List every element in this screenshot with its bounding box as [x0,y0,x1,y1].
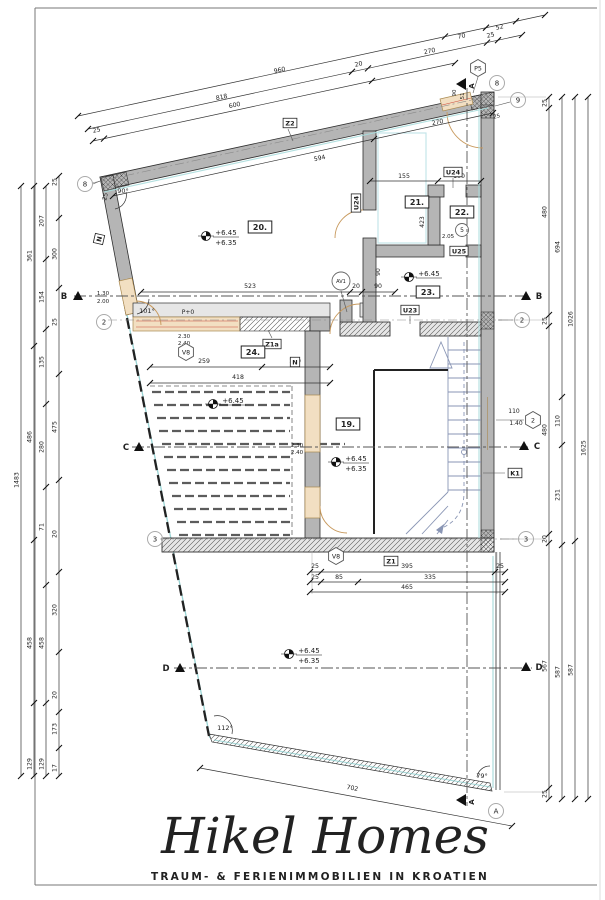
tag-box-label: N [292,359,297,367]
section-marker-B [521,291,531,300]
annotation-text: 280 [39,441,46,453]
annotation-text: 2 [531,417,535,424]
annotation-text: 22. [455,208,469,217]
annotation-text: B [536,292,542,302]
tag-box-u25: U25 [450,246,468,256]
tag-box-label: Z2 [285,120,294,128]
annotation-text: 231 [555,489,562,501]
annotation-text: A [468,83,476,89]
dim-tick [542,12,548,18]
annotation-text: 101° [139,307,155,315]
section-marker-D [175,663,185,672]
annotation-text: 19. [341,420,355,429]
annotation-text: 2 [520,317,524,325]
tag-box-label: U25 [452,248,467,256]
window-mid-wall [305,395,320,452]
annotation-text: V8 [182,349,190,356]
section-marker-C [519,441,529,450]
annotation-text: 480 [542,206,549,218]
annotation-text: +6.45 [222,397,243,405]
annotation-text: 155 [398,173,410,180]
elevation-marker [289,650,294,655]
annotation-text: 25 [311,574,319,581]
dim-tick [509,823,515,829]
annotation-text: 1.40 [509,420,523,427]
section-flag-A [456,794,466,806]
elevation-marker [206,232,211,237]
annotation-text: 2.30 [178,334,191,340]
annotation-text: 25 [52,178,59,186]
annotation-text: 25 [311,563,319,570]
annotation-text: 475 [52,421,59,433]
dim-tick [452,60,458,66]
elevation-marker [213,400,218,405]
section-flag-A [456,78,466,90]
annotation-text: 2.05 [442,234,455,240]
annotation-text: +6.45 [418,270,439,278]
annotation-text: 270 [423,47,436,56]
dim-tick [197,765,203,771]
entrance-opening [440,92,488,450]
annotation-text: 458 [27,637,34,649]
annotation-text: 20 [52,530,59,538]
annotation-text: 25 [52,318,59,326]
annotation-text: 20 [542,535,549,543]
dim-tick [519,32,525,38]
annotation-text: 702 [346,784,359,793]
section-marker-C [134,442,144,451]
annotation-text: 3 [524,536,528,544]
tag-box-z1a: Z1a [263,339,281,349]
annotation-text: +6.35 [298,657,319,665]
annotation-text: 320 [52,604,59,616]
annotation-text: 129 [39,758,46,770]
dim-tick [369,78,375,84]
annotation-text: 587 [568,664,575,676]
tag-box-k1: K1 [508,468,522,478]
annotation-text: A [468,799,476,805]
section-marker-B [73,291,83,300]
annotation-text: 465 [401,584,413,591]
annotation-text: 70 [457,32,466,41]
annotation-text: 3 [153,536,157,544]
annotation-text: 85 [335,574,343,581]
elevation-marker [285,654,290,659]
annotation-text: 300 [52,248,59,260]
annotation-text: 259 [198,358,210,365]
annotation-text: +6.45 [215,229,236,237]
annotation-text: 8 [495,80,499,88]
annotation-text: 25 [542,790,549,798]
tag-box-label: U24 [353,195,361,210]
window-mid-wall [305,487,320,518]
annotation-text: C [123,443,129,453]
annotation-text: 90 [452,89,458,96]
annotation-text: 24. [246,348,260,357]
annotation-text: 594 [313,154,326,163]
annotation-text: 129 [27,758,34,770]
elevation-marker [202,236,207,241]
annotation-text: 90 [374,283,382,290]
elevation-marker [209,404,214,409]
annotation-text: 9 [516,97,520,105]
annotation-text: 694 [555,241,562,253]
tag-box-u23: U23 [401,305,419,315]
annotation-text: 523 [244,283,256,290]
angle-arcs [115,192,490,777]
plot-boundary [101,180,500,791]
annotation-text: 270 [431,118,444,127]
annotation-text: 587 [555,666,562,678]
annotation-text: 110 [555,415,562,427]
dim-tick [365,65,371,71]
annotation-text: 25 [92,126,101,135]
annotation-text: A [494,808,499,816]
dim-tick [513,18,519,24]
annotation-text: 423 [419,216,426,228]
floor-opening-edge [374,370,448,534]
tag-box-label: Z1 [386,558,396,566]
annotation-text: 110 [508,408,520,415]
elevation-marker [336,458,341,463]
annotation-text: 480 [542,424,549,436]
tag-box-label: Z1a [265,341,279,349]
annotation-text: 52 [495,23,504,32]
tag-box-u24: U24 [444,167,462,177]
annotation-text: C [534,442,540,452]
tag-box-z1: Z1 [384,556,398,566]
tag-box-label: U23 [403,307,417,315]
annotation-text: 25 [486,31,495,40]
annotation-text: 90 [375,268,382,276]
annotation-text: 25 [493,113,502,120]
annotation-text: D [162,664,169,674]
tag-box-n: N [93,233,104,244]
elevation-marker [409,273,414,278]
annotation-text: 135 [39,356,46,368]
tag-box-z2: Z2 [283,118,297,128]
elevation-marker [332,462,337,467]
annotation-text: 2.30 [291,443,304,449]
annotation-text: 20 [352,283,360,290]
dim-tick [75,113,81,119]
section-marker-D [521,662,531,671]
dim-tick [483,25,489,31]
annotation-text: 960 [273,66,286,75]
annotation-text: +6.45 [345,455,366,463]
annotation-text: 25 [542,317,549,325]
floor-plan-sheet: 1483361486458129207154135280714581292530… [0,0,605,900]
dim-tick [484,40,490,46]
annotation-text: 361 [27,250,34,262]
annotation-text: 418 [232,374,244,381]
annotation-text: 1483 [14,472,21,488]
annotation-text: P+0 [182,309,195,316]
annotation-text: AV1 [336,279,346,285]
dim-tick [90,138,96,144]
annotation-text: V8 [332,553,340,560]
annotation-text: 173 [52,723,59,735]
annotation-text: 5 [460,227,464,234]
annotation-text: 1.30 [97,291,110,297]
annotation-text: 154 [39,291,46,303]
annotation-text: B [61,292,67,302]
dim-tick [101,136,107,142]
annotation-text: D [535,663,542,673]
annotation-text: 486 [27,431,34,443]
annotation-text: 818 [215,93,228,102]
annotation-text: P5 [474,65,482,72]
logo-tagline: TRAUM- & FERIENIMMOBILIEN IN KROATIEN [151,871,489,883]
annotation-text: 600 [228,101,241,110]
annotation-text: 2.00 [97,299,110,305]
tag-box-label: U24 [446,169,461,177]
dim-tick [495,37,501,43]
annotation-text: +6.35 [215,239,236,247]
annotation-text: +6.35 [345,465,366,473]
dim-tick [349,69,355,75]
annotation-text: 458 [39,637,46,649]
floor-plan-svg: 1483361486458129207154135280714581292530… [0,0,605,900]
annotation-text: 2.40 [291,450,304,456]
annotation-text: 25 [496,563,504,570]
annotation-text: 25 [542,99,549,107]
tag-box-n: N [290,357,299,367]
annotation-text: 2 [102,319,106,327]
annotation-text: 20. [253,223,267,232]
annotation-text: 20 [354,60,363,69]
annotation-text: 567 [542,660,549,672]
annotation-text: 207 [39,215,46,227]
logo: Hikel Homes TRAUM- & FERIENIMMOBILIEN IN… [151,807,489,883]
annotation-text: 20 [52,691,59,699]
annotation-text: 1026 [568,311,575,327]
annotation-text: 71 [39,523,46,531]
annotation-text: 79° [476,772,488,780]
annotation-text: 395 [401,563,413,570]
annotation-text: 23. [421,288,435,297]
elevation-marker [405,277,410,282]
tag-box-u24: U24 [351,194,361,212]
annotation-text: 112° [217,724,233,732]
annotation-text: +6.45 [298,647,319,655]
annotation-text: 335 [424,574,436,581]
stairs [406,337,481,534]
annotation-text: 90° [117,187,129,195]
logo-text: Hikel Homes [160,807,489,865]
dim-tick [85,126,91,132]
tag-box-label: K1 [510,470,520,478]
annotation-text: 8 [83,181,87,189]
annotation-text: 51 [460,93,466,100]
annotation-text: 17 [52,764,59,772]
annotation-text: 21. [410,198,424,207]
annotation-text: 1625 [581,440,588,456]
window-band [133,317,240,331]
